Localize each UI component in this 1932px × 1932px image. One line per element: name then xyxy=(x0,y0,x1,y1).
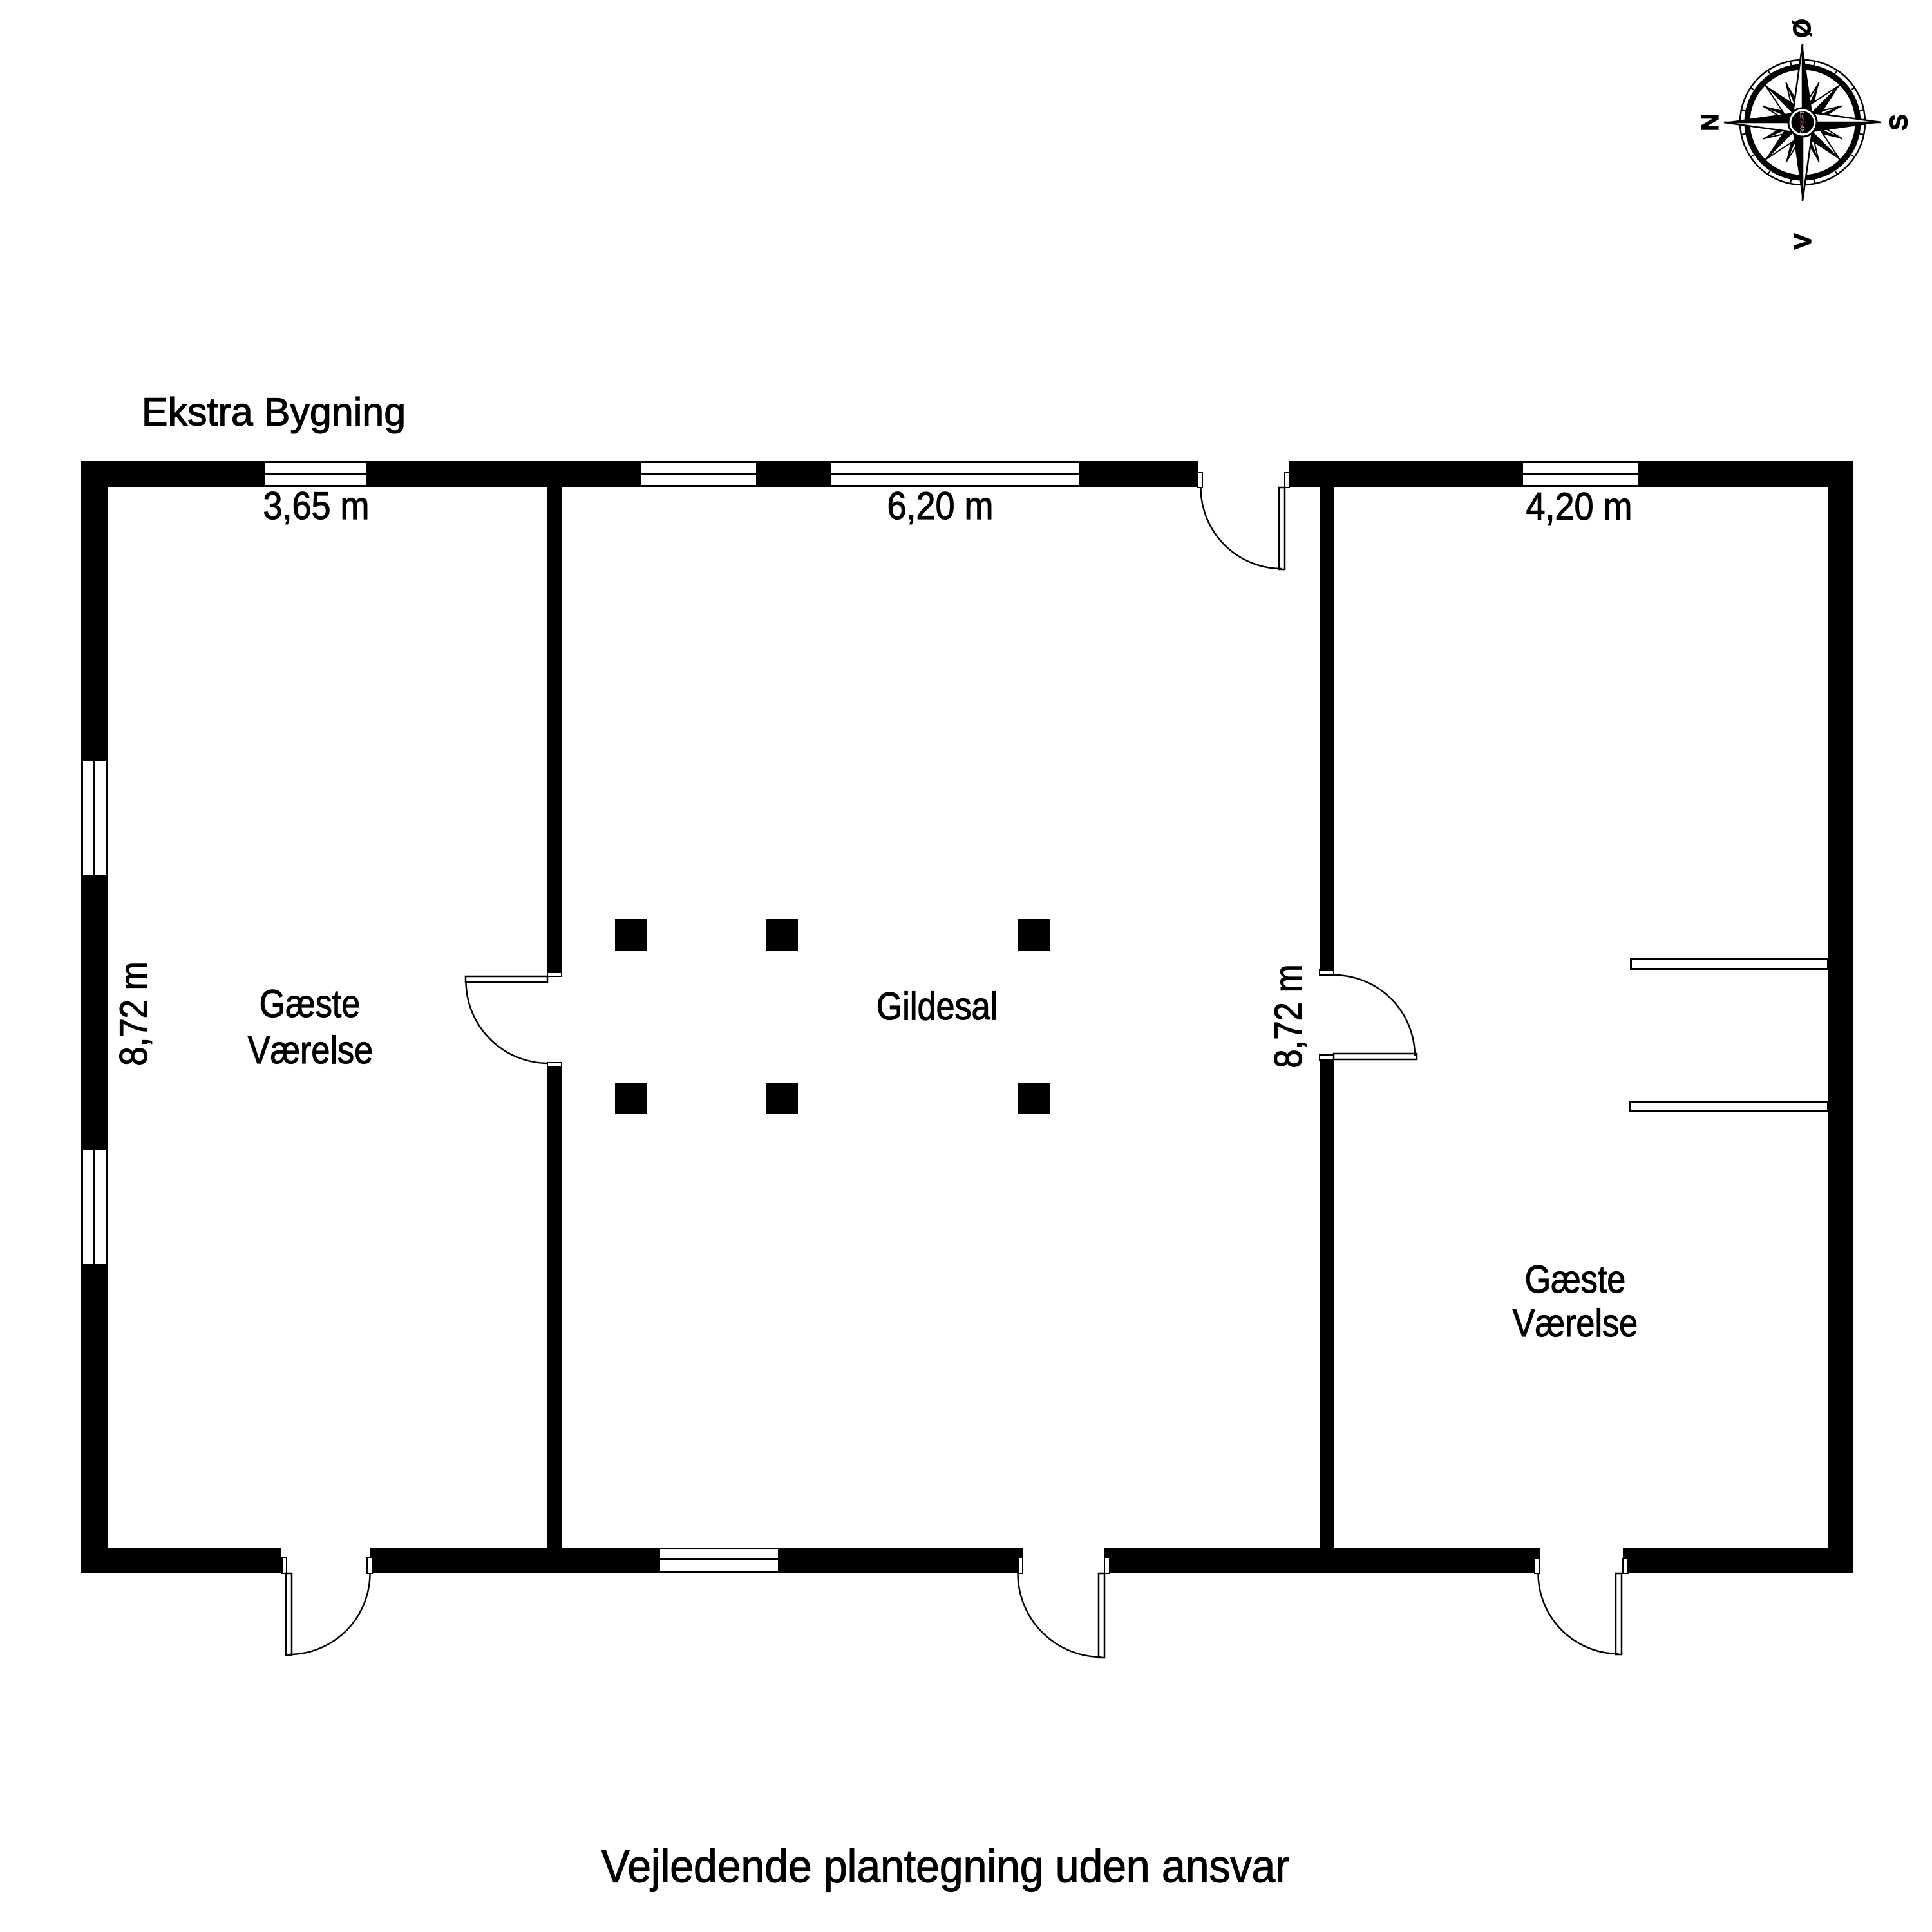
svg-text:FORNET: FORNET xyxy=(1799,110,1806,135)
